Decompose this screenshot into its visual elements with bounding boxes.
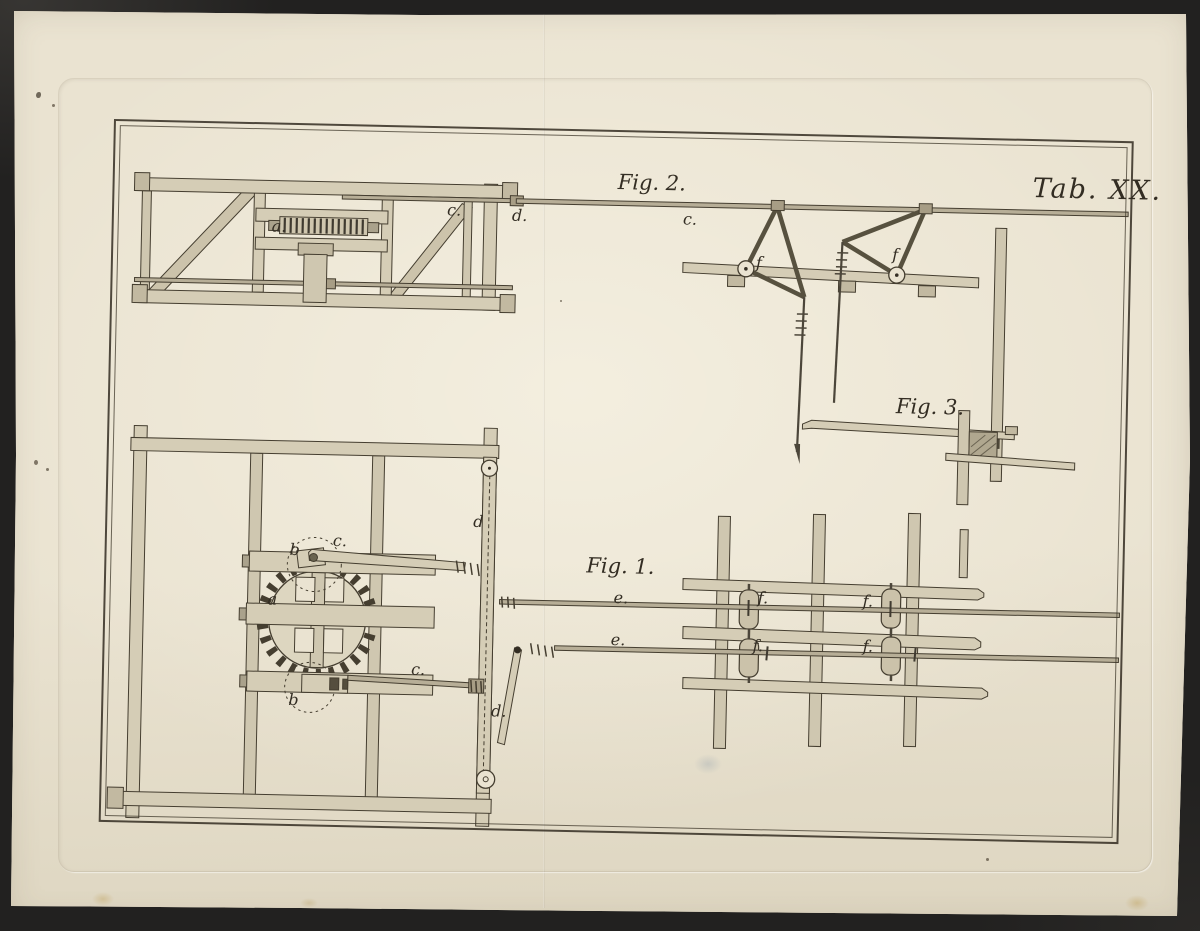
paper-speck [52,104,55,107]
paper-stain [1125,895,1149,911]
paper-sheet: Tab. XX. Fig. 2. Fig. 3. Fig. 1. a.c.d.c… [0,0,1200,931]
paper-stain [300,898,318,908]
scanned-engraving-page: { "document": { "type": "engraved-techni… [0,0,1200,931]
paper-speck [46,468,49,471]
plate-border-inner [105,125,1128,838]
engraving-plate: Tab. XX. Fig. 2. Fig. 3. Fig. 1. a.c.d.c… [99,119,1134,844]
paper-speck [34,460,38,465]
paper-stain [92,892,114,906]
paper-speck [986,858,989,861]
